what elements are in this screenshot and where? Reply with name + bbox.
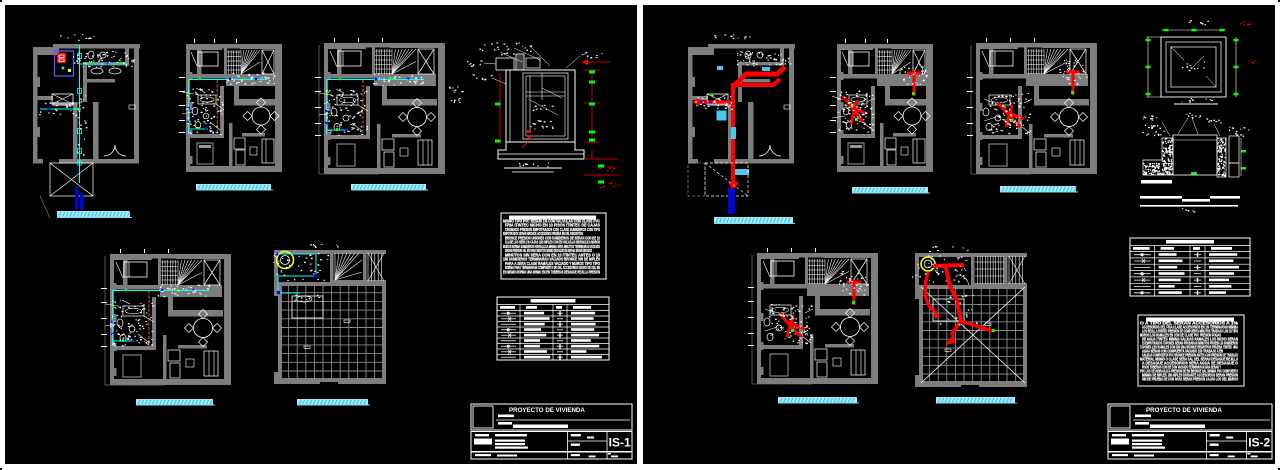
svg-text:IS-2: IS-2 xyxy=(1248,436,1270,450)
svg-text:PROYECTO DE VIVIENDA: PROYECTO DE VIVIENDA xyxy=(509,407,585,414)
svg-text:SIN DE PRUEBA DE CON PARA SERA: SIN DE PRUEBA DE CON PARA SERAN PRESION … xyxy=(1142,377,1238,382)
svg-text:IS-1: IS-1 xyxy=(609,436,631,450)
svg-text:PROYECTO DE VIVIENDA: PROYECTO DE VIVIENDA xyxy=(1146,407,1222,414)
svg-text:EN MISMO NORMA UNA MISMO EN EN: EN MISMO NORMA UNA MISMO EN EN TUBERIAS … xyxy=(503,269,600,274)
